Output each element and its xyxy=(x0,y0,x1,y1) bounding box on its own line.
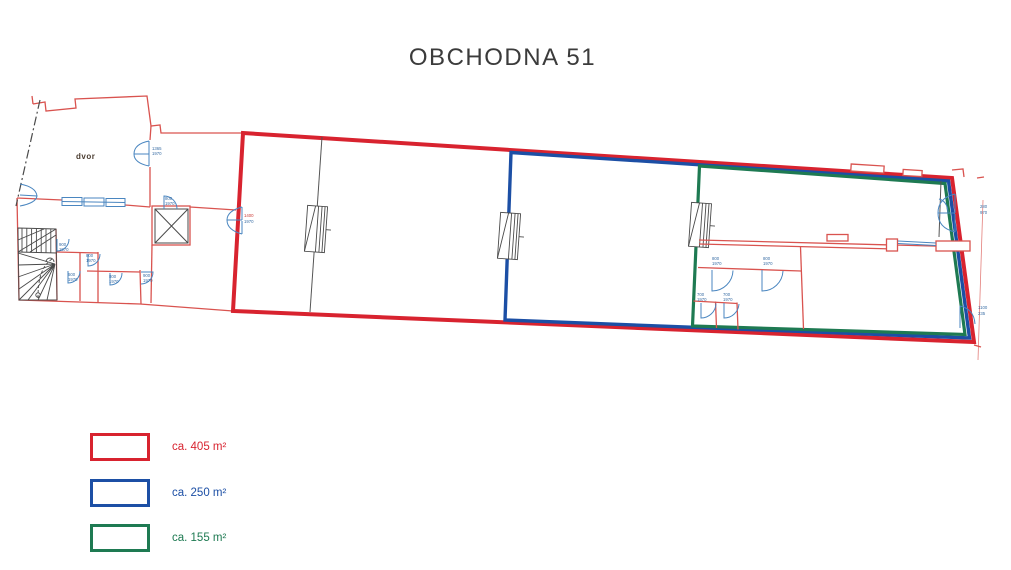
floor-plan-page: OBCHODNA 51 xyxy=(0,0,1011,570)
dimension-label: 1100 xyxy=(978,305,988,310)
chimney-symbol-2 xyxy=(497,212,525,260)
legend-item-blue: ca. 250 m² xyxy=(90,476,226,510)
dimension-label: 1970 xyxy=(244,219,254,224)
legend-item-green: ca. 155 m² xyxy=(90,521,226,555)
interior-partitions-black xyxy=(310,137,941,312)
dimension-label: 235 xyxy=(978,311,986,316)
dimension-label: 1970 xyxy=(723,297,733,302)
left-wing-walls xyxy=(17,96,243,311)
dimension-label: 1970 xyxy=(68,277,78,282)
legend-swatch-green xyxy=(90,524,150,552)
staircase xyxy=(18,228,57,300)
dimension-label: 1970 xyxy=(763,261,773,266)
dimension-label: 1970 xyxy=(165,201,175,206)
elevator-shaft xyxy=(155,209,188,243)
boundary-dash-dot-line xyxy=(16,100,40,206)
legend-swatch-blue xyxy=(90,479,150,507)
dimension-label: 1970 xyxy=(697,297,707,302)
chimney-symbol-1 xyxy=(304,205,332,253)
area-outline-green xyxy=(693,166,966,335)
dimension-label: 280 xyxy=(980,204,988,209)
legend-swatch-red xyxy=(90,433,150,461)
dimension-label: 1400 xyxy=(244,213,254,218)
legend-item-red: ca. 405 m² xyxy=(90,430,226,464)
dimension-label: 1970 xyxy=(59,247,69,252)
dimension-label: 1970 xyxy=(86,258,96,263)
dimension-label: 1970 xyxy=(712,261,722,266)
window-band xyxy=(62,198,125,207)
chimney-symbol-3 xyxy=(688,202,716,248)
legend-label-blue: ca. 250 m² xyxy=(172,487,226,499)
dimension-label: 1970 xyxy=(152,151,162,156)
dimension-label: 1970 xyxy=(109,279,119,284)
courtyard-label: dvor xyxy=(76,152,95,161)
legend-label-green: ca. 155 m² xyxy=(172,532,226,544)
dimension-label: 1970 xyxy=(143,278,153,283)
legend-label-red: ca. 405 m² xyxy=(172,441,226,453)
dimension-label: 970 xyxy=(980,210,988,215)
